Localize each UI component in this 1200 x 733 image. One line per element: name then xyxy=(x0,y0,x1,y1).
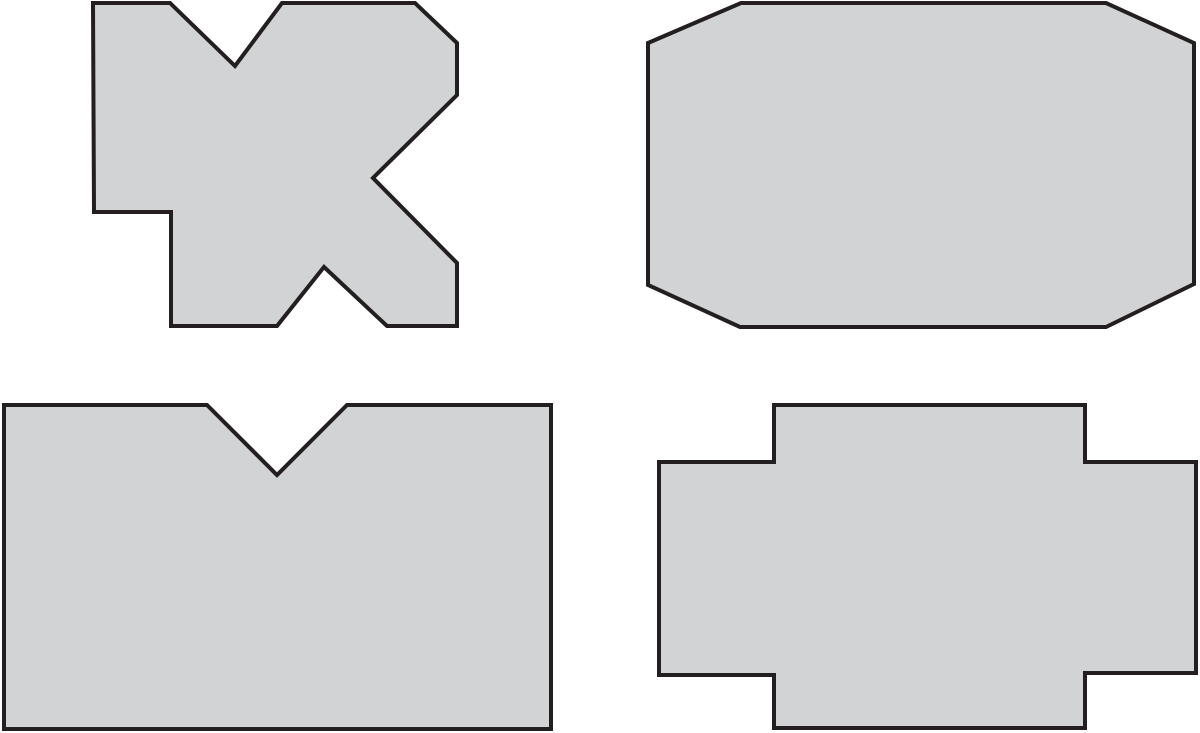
notched-rectangle-polygon xyxy=(4,405,551,729)
octagon-polygon xyxy=(648,3,1194,327)
diagram-canvas xyxy=(0,0,1200,733)
x-shaped-concave-polygon xyxy=(93,3,457,326)
polygon-figure xyxy=(0,0,1200,733)
stepped-cross-polygon xyxy=(659,405,1196,728)
